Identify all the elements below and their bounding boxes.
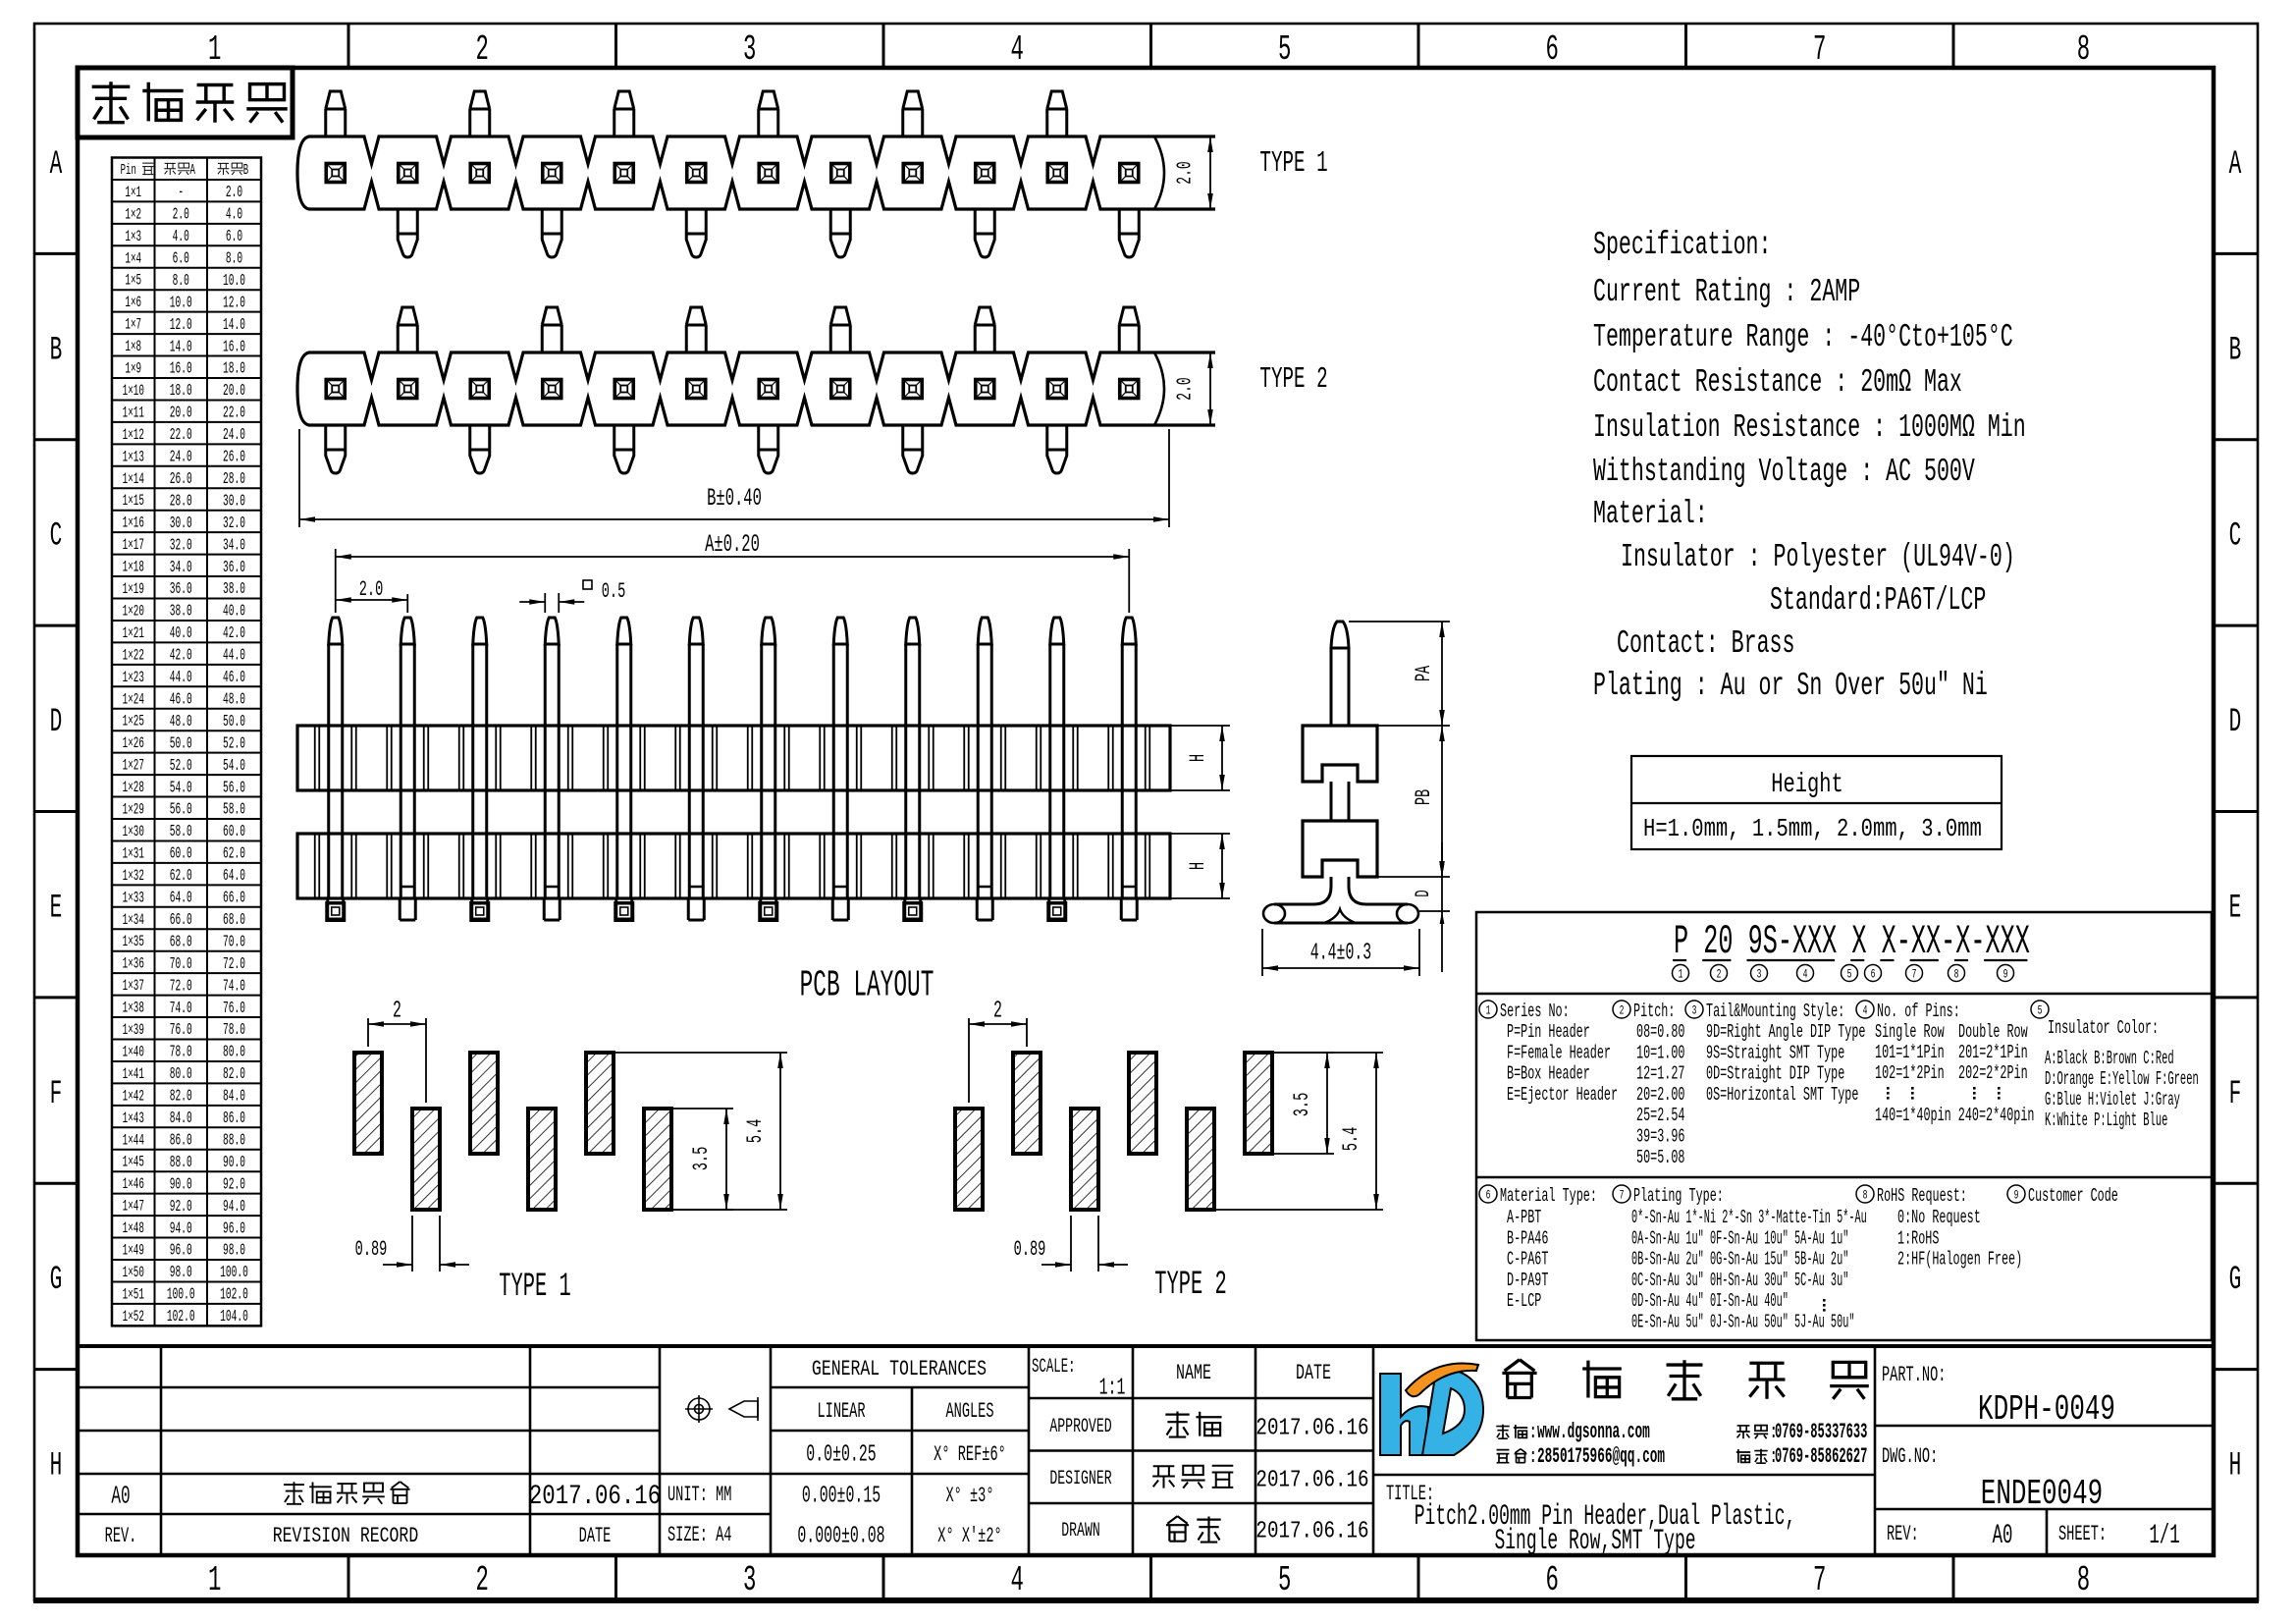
svg-text:60.0: 60.0 [170, 845, 192, 863]
svg-text:1×52: 1×52 [123, 1307, 144, 1325]
svg-text:Customer Code: Customer Code [2028, 1185, 2118, 1207]
svg-text:42.0: 42.0 [223, 625, 245, 643]
svg-text:Material Type:: Material Type: [1500, 1185, 1597, 1207]
svg-text:1×4: 1×4 [125, 249, 141, 267]
svg-text:1×51: 1×51 [123, 1285, 144, 1303]
svg-text:42.0: 42.0 [170, 647, 192, 665]
svg-text:86.0: 86.0 [223, 1110, 245, 1128]
svg-text:68.0: 68.0 [223, 912, 245, 930]
svg-text:36.0: 36.0 [170, 581, 192, 599]
svg-text:1×42: 1×42 [123, 1087, 144, 1105]
svg-text:88.0: 88.0 [223, 1132, 245, 1150]
svg-text:-: - [178, 185, 184, 202]
svg-text:1×3: 1×3 [125, 227, 141, 244]
svg-text:2: 2 [393, 997, 401, 1024]
svg-text:96.0: 96.0 [170, 1242, 192, 1260]
svg-text:NAME: NAME [1176, 1360, 1211, 1385]
svg-text:DESIGNER: DESIGNER [1049, 1469, 1111, 1490]
svg-text:0.00±0.15: 0.00±0.15 [802, 1482, 881, 1509]
svg-text:18.0: 18.0 [170, 383, 192, 401]
svg-text:A: A [2229, 145, 2242, 183]
svg-text:4: 4 [1011, 29, 1024, 70]
svg-text:ANGLES: ANGLES [945, 1400, 993, 1424]
svg-text:6.0: 6.0 [173, 250, 189, 268]
svg-text:0:No Request: 0:No Request [1897, 1207, 1981, 1228]
svg-text:4.0: 4.0 [173, 229, 189, 246]
svg-text:22.0: 22.0 [223, 405, 245, 422]
svg-text:D: D [1412, 890, 1434, 896]
svg-text:90.0: 90.0 [223, 1155, 245, 1172]
svg-text:88.0: 88.0 [170, 1155, 192, 1172]
svg-text:5: 5 [2038, 1004, 2043, 1018]
svg-text:H: H [2229, 1447, 2242, 1485]
svg-text:52.0: 52.0 [170, 758, 192, 776]
svg-text:92.0: 92.0 [223, 1176, 245, 1194]
svg-text:Plating : Au or Sn Over 50u" N: Plating : Au or Sn Over 50u" Ni [1593, 669, 1988, 705]
svg-text::: : [1529, 1445, 1536, 1468]
svg-text:7: 7 [1912, 968, 1917, 982]
svg-text:0.5: 0.5 [602, 580, 626, 604]
svg-text:1×8: 1×8 [125, 338, 141, 355]
svg-text:78.0: 78.0 [223, 1022, 245, 1040]
svg-text:SHEET:: SHEET: [2058, 1523, 2107, 1546]
svg-text:70.0: 70.0 [223, 934, 245, 951]
svg-text:1×28: 1×28 [123, 779, 144, 796]
svg-text:DWG.NO:: DWG.NO: [1882, 1445, 1938, 1469]
svg-text:66.0: 66.0 [223, 890, 245, 907]
svg-text:H: H [1187, 862, 1210, 870]
svg-text:No. of Pins:: No. of Pins: [1877, 1001, 1960, 1022]
svg-text:5: 5 [1278, 1560, 1291, 1600]
svg-text:3: 3 [743, 1560, 756, 1600]
svg-text:56.0: 56.0 [223, 780, 245, 797]
svg-text:1×21: 1×21 [123, 623, 144, 641]
svg-text:32.0: 32.0 [170, 537, 192, 555]
svg-text:2:HF(Halogen Free): 2:HF(Halogen Free) [1897, 1249, 2022, 1271]
svg-text:30.0: 30.0 [223, 493, 245, 511]
svg-text:5: 5 [1847, 968, 1852, 982]
svg-text:1×16: 1×16 [123, 514, 144, 531]
svg-text:68.0: 68.0 [170, 934, 192, 951]
svg-text:1/1: 1/1 [2149, 1520, 2179, 1550]
svg-text:D: D [2229, 703, 2242, 740]
svg-text:84.0: 84.0 [170, 1110, 192, 1128]
svg-text:GENERAL TOLERANCES: GENERAL TOLERANCES [812, 1357, 987, 1381]
svg-text:8.0: 8.0 [173, 273, 189, 291]
svg-text:82.0: 82.0 [170, 1088, 192, 1106]
svg-text:1×31: 1×31 [123, 844, 144, 862]
svg-text:PART.NO:: PART.NO: [1882, 1364, 1946, 1387]
svg-text:102=1*2Pin: 102=1*2Pin [1875, 1062, 1945, 1084]
svg-text:A0: A0 [111, 1483, 130, 1511]
svg-text:1×11: 1×11 [123, 404, 144, 421]
svg-text:58.0: 58.0 [170, 824, 192, 841]
svg-text:9D=Right Angle DIP Type: 9D=Right Angle DIP Type [1706, 1021, 1865, 1043]
svg-text:3.5: 3.5 [1291, 1093, 1314, 1117]
svg-text:18.0: 18.0 [223, 360, 245, 378]
svg-text:98.0: 98.0 [223, 1242, 245, 1260]
svg-text:TYPE 1: TYPE 1 [1259, 146, 1327, 181]
svg-text:101=1*1Pin: 101=1*1Pin [1875, 1042, 1945, 1063]
svg-text:70.0: 70.0 [170, 956, 192, 974]
svg-text:7: 7 [1813, 1560, 1826, 1600]
svg-text:34.0: 34.0 [223, 537, 245, 555]
svg-text:8.0: 8.0 [226, 250, 242, 268]
svg-text:TYPE 1: TYPE 1 [499, 1270, 570, 1307]
svg-text:1: 1 [208, 1560, 221, 1600]
svg-text:38.0: 38.0 [170, 603, 192, 621]
svg-text:10.0: 10.0 [170, 295, 192, 312]
svg-text:2017.06.16: 2017.06.16 [1255, 1467, 1368, 1494]
svg-text:1×38: 1×38 [123, 999, 144, 1016]
svg-text:12.0: 12.0 [223, 295, 245, 312]
svg-text:C-PA6T: C-PA6T [1507, 1249, 1548, 1271]
svg-text:12.0: 12.0 [170, 317, 192, 335]
svg-text:0769-85337633: 0769-85337633 [1775, 1421, 1867, 1445]
svg-text:P=Pin Header: P=Pin Header [1507, 1021, 1590, 1043]
svg-text:1×48: 1×48 [123, 1219, 144, 1237]
svg-text:94.0: 94.0 [170, 1220, 192, 1238]
svg-text:PA: PA [1413, 666, 1436, 681]
svg-text:C: C [50, 517, 63, 555]
svg-text:TYPE 2: TYPE 2 [1259, 362, 1327, 397]
svg-text:36.0: 36.0 [223, 560, 245, 577]
svg-text:1×27: 1×27 [123, 756, 144, 774]
svg-text:1×47: 1×47 [123, 1197, 144, 1215]
svg-text:44.0: 44.0 [170, 670, 192, 687]
svg-text:39=3.96: 39=3.96 [1636, 1126, 1684, 1148]
svg-text:6: 6 [1486, 1189, 1491, 1203]
svg-text:94.0: 94.0 [223, 1199, 245, 1217]
svg-text:PB: PB [1413, 789, 1436, 805]
svg-text:26.0: 26.0 [170, 471, 192, 489]
svg-text:ENDE0049: ENDE0049 [1981, 1475, 2103, 1514]
svg-text:K:White P:Light Blue: K:White P:Light Blue [2045, 1110, 2167, 1131]
svg-text:1×14: 1×14 [123, 469, 144, 487]
svg-text:H=1.0mm, 1.5mm, 2.0mm, 3.0mm: H=1.0mm, 1.5mm, 2.0mm, 3.0mm [1643, 816, 1982, 844]
svg-text:1: 1 [208, 29, 221, 70]
svg-text:1×12: 1×12 [123, 425, 144, 443]
svg-text:52.0: 52.0 [223, 735, 245, 753]
svg-text:A: A [190, 162, 196, 179]
svg-text:E: E [50, 890, 63, 927]
svg-text:LINEAR: LINEAR [817, 1400, 865, 1424]
svg-text:1×9: 1×9 [125, 359, 141, 377]
svg-text:24.0: 24.0 [223, 427, 245, 445]
svg-text:16.0: 16.0 [223, 339, 245, 356]
svg-text:KDPH-0049: KDPH-0049 [1978, 1390, 2115, 1430]
svg-text:A: A [50, 145, 63, 183]
svg-text:2: 2 [1717, 968, 1722, 982]
svg-text:1×44: 1×44 [123, 1131, 144, 1149]
svg-text:3: 3 [1692, 1004, 1697, 1018]
svg-text:2: 2 [476, 1560, 489, 1600]
svg-text:B-PA46: B-PA46 [1507, 1228, 1548, 1250]
svg-text:2: 2 [476, 29, 489, 70]
svg-text:50=5.08: 50=5.08 [1636, 1147, 1684, 1168]
svg-text:1×37: 1×37 [123, 977, 144, 995]
svg-text:1×23: 1×23 [123, 668, 144, 685]
svg-text:4: 4 [1011, 1560, 1024, 1600]
svg-text:74.0: 74.0 [170, 1001, 192, 1018]
svg-text:DATE: DATE [1296, 1360, 1331, 1385]
svg-text:SIZE: A4: SIZE: A4 [667, 1524, 731, 1547]
svg-text:1×18: 1×18 [123, 558, 144, 575]
svg-text:76.0: 76.0 [170, 1022, 192, 1040]
svg-text:1: 1 [1679, 968, 1683, 982]
svg-text:G: G [2229, 1262, 2242, 1299]
svg-text:34.0: 34.0 [170, 560, 192, 577]
svg-text:28.0: 28.0 [223, 471, 245, 489]
svg-text:1×2: 1×2 [125, 205, 141, 223]
svg-text:0B-Sn-Au 2u" 0G-Sn-Au 15u" 5B: 0B-Sn-Au 2u" 0G-Sn-Au 15u" 5B-Au 2u" [1631, 1248, 1848, 1270]
svg-text:B: B [2229, 332, 2242, 369]
svg-text:104.0: 104.0 [220, 1309, 248, 1326]
svg-text:Current Rating : 2AMP: Current Rating : 2AMP [1593, 275, 1860, 311]
svg-text:32.0: 32.0 [223, 515, 245, 533]
svg-text:60.0: 60.0 [223, 824, 245, 841]
svg-text:1×46: 1×46 [123, 1175, 144, 1193]
svg-text:F: F [50, 1075, 63, 1112]
svg-text:Series No:: Series No: [1500, 1001, 1570, 1022]
svg-text:76.0: 76.0 [223, 1001, 245, 1018]
svg-text:TYPE 2: TYPE 2 [1154, 1268, 1226, 1305]
svg-text:8: 8 [1863, 1189, 1868, 1203]
svg-text:0C-Sn-Au 3u" 0H-Sn-Au 30u" 5C: 0C-Sn-Au 3u" 0H-Sn-Au 30u" 5C-Au 3u" [1631, 1270, 1848, 1291]
svg-text:1×45: 1×45 [123, 1153, 144, 1170]
svg-text:Insulator : Polyester (UL94V-0: Insulator : Polyester (UL94V-0) [1621, 540, 2015, 576]
svg-text:Plating Type:: Plating Type: [1633, 1185, 1724, 1207]
svg-text:1×1: 1×1 [125, 183, 141, 200]
svg-text:1×32: 1×32 [123, 866, 144, 884]
svg-text:REV:: REV: [1887, 1523, 1919, 1546]
svg-text:48.0: 48.0 [223, 691, 245, 709]
svg-text:E-LCP: E-LCP [1507, 1291, 1541, 1313]
svg-text:62.0: 62.0 [170, 868, 192, 886]
svg-text:2.0: 2.0 [226, 185, 242, 202]
svg-text:PCB LAYOUT: PCB LAYOUT [800, 965, 934, 1006]
svg-text:1×6: 1×6 [125, 294, 141, 311]
svg-text:Double Row: Double Row [1958, 1021, 2028, 1043]
svg-text:86.0: 86.0 [170, 1132, 192, 1150]
svg-text:1×24: 1×24 [123, 690, 144, 708]
svg-text:2.0: 2.0 [173, 206, 189, 224]
svg-text:D: D [50, 703, 63, 740]
svg-text:46.0: 46.0 [170, 691, 192, 709]
svg-text:1×43: 1×43 [123, 1109, 144, 1126]
svg-text:B: B [50, 332, 63, 369]
svg-text:1×29: 1×29 [123, 800, 144, 818]
svg-text:7: 7 [1813, 29, 1826, 70]
svg-text:G: G [50, 1262, 63, 1299]
svg-text:62.0: 62.0 [223, 845, 245, 863]
svg-text:0.89: 0.89 [355, 1238, 388, 1262]
svg-text:102.0: 102.0 [220, 1286, 248, 1304]
svg-text:E: E [2229, 890, 2242, 927]
svg-text:1×13: 1×13 [123, 448, 144, 465]
svg-text:6: 6 [1546, 1560, 1559, 1600]
svg-text:0S=Horizontal SMT Type: 0S=Horizontal SMT Type [1706, 1084, 1858, 1106]
svg-text:0D=Straight DIP Type: 0D=Straight DIP Type [1706, 1063, 1844, 1085]
svg-text:16.0: 16.0 [170, 360, 192, 378]
svg-text:2.0: 2.0 [359, 578, 384, 602]
svg-text:DATE: DATE [579, 1525, 612, 1548]
svg-text:1×25: 1×25 [123, 712, 144, 730]
svg-text:0A-Sn-Au 1u" 0F-Sn-Au 10u" 5A: 0A-Sn-Au 1u" 0F-Sn-Au 10u" 5A-Au 1u" [1631, 1227, 1848, 1249]
svg-text:28.0: 28.0 [170, 493, 192, 511]
svg-text:X° ±3°: X° ±3° [945, 1485, 993, 1508]
svg-text:90.0: 90.0 [170, 1176, 192, 1194]
svg-text:2.0: 2.0 [1174, 161, 1198, 184]
svg-text:B±0.40: B±0.40 [707, 486, 762, 514]
svg-text:1×35: 1×35 [123, 933, 144, 950]
svg-text:2017.06.16: 2017.06.16 [529, 1481, 661, 1512]
svg-text:92.0: 92.0 [170, 1199, 192, 1217]
svg-text:D:Orange E:Yellow F:Green: D:Orange E:Yellow F:Green [2045, 1068, 2199, 1090]
svg-text:Standard:PA6T/LCP: Standard:PA6T/LCP [1770, 583, 1986, 620]
svg-text:1×15: 1×15 [123, 492, 144, 510]
svg-text:Pin: Pin [121, 162, 136, 179]
svg-text:1×19: 1×19 [123, 580, 144, 598]
svg-text:Contact Resistance : 20mΩ Max: Contact Resistance : 20mΩ Max [1593, 365, 1962, 402]
svg-text:G:Blue H:Violet J:Gray: G:Blue H:Violet J:Gray [2045, 1089, 2180, 1110]
svg-text:0.000±0.08: 0.000±0.08 [797, 1522, 884, 1549]
svg-text:12=1.27: 12=1.27 [1636, 1063, 1684, 1085]
svg-text:A-PBT: A-PBT [1507, 1207, 1541, 1228]
svg-text:0E-Sn-Au 5u" 0J-Sn-Au 50u" 5J: 0E-Sn-Au 5u" 0J-Sn-Au 50u" 5J-Au 50u" [1631, 1311, 1855, 1332]
svg-text:2017.06.16: 2017.06.16 [1255, 1415, 1368, 1442]
svg-text:54.0: 54.0 [223, 758, 245, 776]
svg-text:44.0: 44.0 [223, 647, 245, 665]
svg-text:4: 4 [1863, 1004, 1868, 1018]
svg-text:74.0: 74.0 [223, 978, 245, 996]
svg-text:Pitch:: Pitch: [1633, 1001, 1675, 1022]
svg-text:100.0: 100.0 [220, 1265, 248, 1282]
svg-text:4.0: 4.0 [226, 206, 242, 224]
svg-text:2: 2 [993, 997, 1002, 1024]
svg-text:2: 2 [1620, 1004, 1625, 1018]
svg-text:20.0: 20.0 [170, 405, 192, 422]
svg-text:14.0: 14.0 [223, 317, 245, 335]
svg-text:50.0: 50.0 [170, 735, 192, 753]
svg-text:6.0: 6.0 [226, 229, 242, 246]
svg-text:1:RoHS: 1:RoHS [1897, 1228, 1939, 1250]
svg-text:1: 1 [1486, 1004, 1491, 1018]
svg-text:Withstanding Voltage : AC 500V: Withstanding Voltage : AC 500V [1593, 455, 1975, 491]
svg-text:Contact: Brass: Contact: Brass [1617, 626, 1794, 663]
svg-text:8: 8 [2077, 1560, 2090, 1600]
svg-text:SCALE:: SCALE: [1032, 1355, 1076, 1378]
svg-text:1×49: 1×49 [123, 1241, 144, 1259]
svg-text:20=2.00: 20=2.00 [1636, 1084, 1684, 1106]
svg-text:RoHS Request:: RoHS Request: [1877, 1185, 1967, 1207]
svg-text:1×30: 1×30 [123, 823, 144, 840]
svg-text:40.0: 40.0 [223, 603, 245, 621]
svg-text:3: 3 [1757, 968, 1762, 982]
svg-text:0D-Sn-Au 4u" 0I-Sn-Au 40u": 0D-Sn-Au 4u" 0I-Sn-Au 40u" [1631, 1290, 1789, 1312]
svg-text:78.0: 78.0 [170, 1044, 192, 1061]
svg-text:3.5: 3.5 [690, 1147, 714, 1171]
svg-text:www.dgsonna.com: www.dgsonna.com [1537, 1421, 1650, 1444]
svg-text:7: 7 [1620, 1189, 1625, 1203]
svg-text::: : [1529, 1421, 1536, 1443]
svg-text:B: B [243, 162, 248, 179]
svg-text:0.89: 0.89 [1014, 1238, 1046, 1262]
svg-text:2017.06.16: 2017.06.16 [1255, 1518, 1368, 1545]
svg-text:4.4±0.3: 4.4±0.3 [1310, 939, 1371, 966]
svg-text:46.0: 46.0 [223, 670, 245, 687]
svg-text:08=0.80: 08=0.80 [1636, 1021, 1684, 1043]
svg-text:Single Row: Single Row [1875, 1021, 1945, 1043]
svg-text:3: 3 [743, 29, 756, 70]
svg-text:Height: Height [1771, 770, 1843, 800]
svg-text:1×33: 1×33 [123, 889, 144, 906]
svg-text:0769-85862627: 0769-85862627 [1775, 1445, 1867, 1470]
svg-text:DRAWN: DRAWN [1061, 1521, 1100, 1543]
svg-text:1×39: 1×39 [123, 1021, 144, 1039]
svg-text:6: 6 [1871, 968, 1876, 982]
svg-text:25=2.54: 25=2.54 [1636, 1106, 1684, 1127]
svg-text:Specification:: Specification: [1593, 228, 1771, 264]
svg-text:E=Ejector Header: E=Ejector Header [1507, 1084, 1618, 1106]
svg-text:30.0: 30.0 [170, 515, 192, 533]
svg-text:F=Female Header: F=Female Header [1507, 1043, 1611, 1064]
svg-text:1:1: 1:1 [1099, 1374, 1126, 1401]
svg-text:F: F [2229, 1075, 2242, 1112]
svg-text:10=1.00: 10=1.00 [1636, 1043, 1684, 1064]
svg-text:P 20 9S-XXX X X-XX-X-XXX: P 20 9S-XXX X X-XX-X-XXX [1674, 919, 2030, 965]
svg-text:10.0: 10.0 [223, 273, 245, 291]
svg-text:66.0: 66.0 [170, 912, 192, 930]
svg-text:A:Black B:Brown C:Red: A:Black B:Brown C:Red [2045, 1048, 2174, 1069]
svg-text:54.0: 54.0 [170, 780, 192, 797]
svg-text:APPROVED: APPROVED [1049, 1417, 1111, 1438]
svg-text:50.0: 50.0 [223, 714, 245, 731]
svg-text:20.0: 20.0 [223, 383, 245, 401]
svg-text:X° REF±6°: X° REF±6° [934, 1443, 1006, 1467]
svg-text:98.0: 98.0 [170, 1265, 192, 1282]
svg-text:64.0: 64.0 [223, 868, 245, 886]
svg-text:1×41: 1×41 [123, 1064, 144, 1082]
svg-text:Insulation Resistance : 1000MΩ: Insulation Resistance : 1000MΩ Min [1593, 410, 2026, 447]
svg-text:Tail&Mounting Style:: Tail&Mounting Style: [1706, 1001, 1844, 1022]
svg-text:2850175966@qq.com: 2850175966@qq.com [1537, 1445, 1665, 1469]
svg-text:5: 5 [1278, 29, 1291, 70]
svg-text:96.0: 96.0 [223, 1220, 245, 1238]
svg-text:Temperature Range : -40°Cto+10: Temperature Range : -40°Cto+105°C [1593, 320, 2013, 356]
svg-text:72.0: 72.0 [223, 956, 245, 974]
svg-text:26.0: 26.0 [223, 449, 245, 466]
svg-text:100.0: 100.0 [167, 1286, 195, 1304]
svg-text:48.0: 48.0 [170, 714, 192, 731]
svg-text:1×26: 1×26 [123, 734, 144, 752]
svg-text:38.0: 38.0 [223, 581, 245, 599]
svg-text:102.0: 102.0 [167, 1309, 195, 1326]
svg-text:202=2*2Pin: 202=2*2Pin [1958, 1062, 2028, 1084]
svg-text:84.0: 84.0 [223, 1088, 245, 1106]
svg-text:9: 9 [2014, 1189, 2019, 1203]
svg-text:4: 4 [1803, 968, 1808, 982]
svg-text:D-PA9T: D-PA9T [1507, 1270, 1548, 1291]
svg-text:5.4: 5.4 [1340, 1127, 1363, 1152]
svg-text:A±0.20: A±0.20 [705, 532, 760, 560]
svg-text:0*-Sn-Au 1*-Ni 2*-Sn 3*-Matte-: 0*-Sn-Au 1*-Ni 2*-Sn 3*-Matte-Tin 5*-Au [1631, 1207, 1867, 1228]
svg-text:8: 8 [1954, 968, 1959, 982]
svg-text:Material:: Material: [1593, 497, 1708, 533]
svg-text:1×7: 1×7 [125, 315, 141, 333]
svg-text:H: H [1187, 754, 1210, 762]
svg-text:22.0: 22.0 [170, 427, 192, 445]
